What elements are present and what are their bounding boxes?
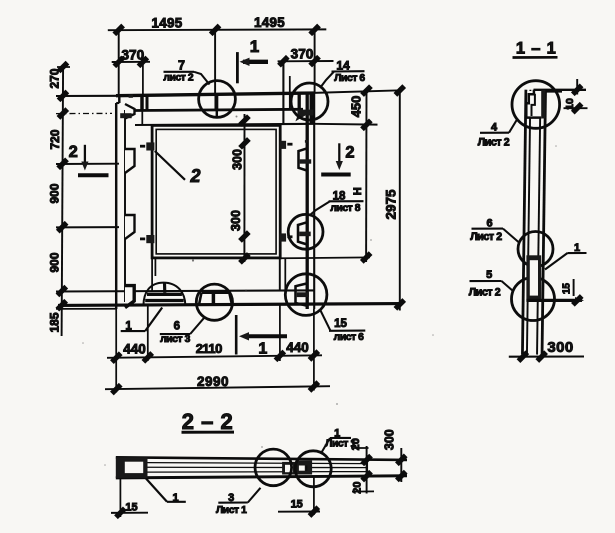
svg-text:300: 300 [230, 149, 244, 170]
svg-text:20: 20 [351, 481, 363, 493]
svg-text:лист 6: лист 6 [334, 332, 365, 343]
svg-text:лист 2: лист 2 [163, 73, 194, 84]
svg-text:720: 720 [48, 129, 62, 149]
svg-text:300: 300 [547, 339, 573, 356]
svg-text:300: 300 [229, 210, 243, 231]
svg-text:900: 900 [48, 183, 62, 203]
svg-text:5: 5 [486, 269, 492, 281]
svg-text:2: 2 [345, 144, 354, 162]
svg-text:Лист 2: Лист 2 [470, 231, 502, 243]
svg-text:14: 14 [336, 58, 350, 72]
svg-text:185: 185 [48, 312, 62, 332]
svg-text:Лист 1: Лист 1 [216, 505, 247, 516]
svg-text:2110: 2110 [196, 341, 222, 356]
svg-text:900: 900 [48, 252, 62, 272]
svg-text:2 – 2: 2 – 2 [182, 409, 233, 434]
svg-text:4: 4 [491, 121, 498, 133]
svg-text:6: 6 [174, 320, 180, 332]
svg-text:15: 15 [125, 502, 137, 514]
svg-text:1: 1 [258, 341, 267, 358]
svg-text:2990: 2990 [197, 374, 229, 389]
svg-text:лист 3: лист 3 [160, 334, 191, 345]
svg-text:7: 7 [178, 58, 185, 72]
svg-text:Лист 2: Лист 2 [478, 137, 510, 149]
svg-text:Лист 6: Лист 6 [334, 73, 365, 84]
svg-text:440: 440 [286, 340, 309, 355]
svg-text:300: 300 [383, 429, 397, 450]
svg-text:6: 6 [486, 217, 492, 229]
svg-text:2975: 2975 [384, 189, 399, 220]
svg-text:1495: 1495 [152, 16, 183, 31]
svg-text:440: 440 [123, 341, 146, 356]
svg-text:1: 1 [250, 37, 259, 56]
svg-text:20: 20 [350, 438, 362, 450]
svg-text:15: 15 [561, 283, 572, 295]
svg-text:370: 370 [121, 48, 144, 63]
svg-text:1 – 1: 1 – 1 [516, 39, 557, 57]
svg-text:лист 8: лист 8 [330, 203, 361, 214]
svg-text:10: 10 [564, 98, 576, 110]
svg-text:Лист 2: Лист 2 [469, 287, 501, 299]
svg-text:1495: 1495 [254, 15, 285, 30]
svg-text:15: 15 [334, 318, 347, 330]
svg-text:15: 15 [291, 499, 303, 511]
svg-text:Н: Н [352, 187, 364, 195]
svg-text:2: 2 [69, 143, 78, 161]
svg-text:450: 450 [349, 96, 364, 118]
svg-text:270: 270 [47, 68, 61, 88]
svg-text:370: 370 [291, 47, 314, 62]
svg-text:2: 2 [189, 166, 200, 186]
